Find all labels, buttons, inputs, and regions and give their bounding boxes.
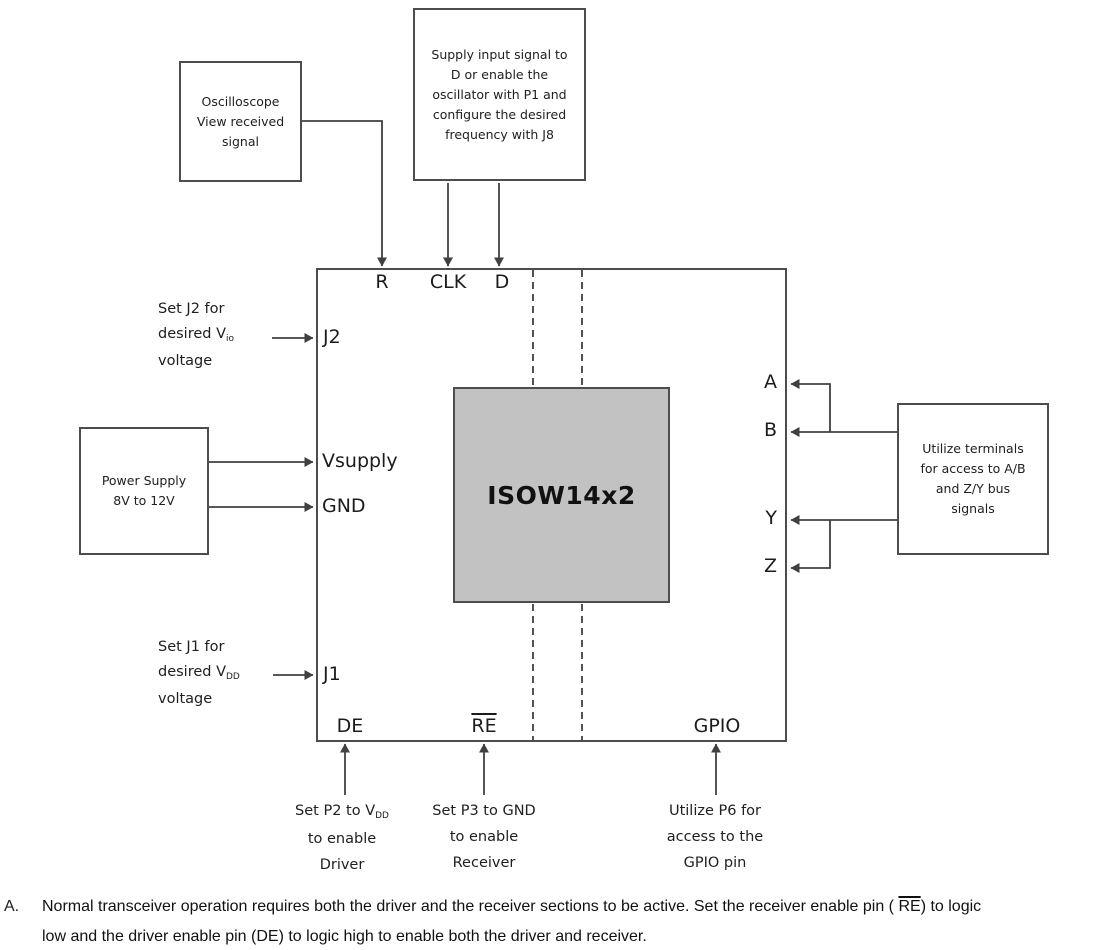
subscript: DD xyxy=(226,672,240,682)
port-label-r: R xyxy=(375,271,388,293)
subscript: DD xyxy=(375,811,389,821)
port-label-gpio: GPIO xyxy=(694,715,741,737)
supply-input-box-line: configure the desired xyxy=(433,105,566,125)
port-label-re-overline: RE xyxy=(471,715,496,737)
footnote-line-2: low and the driver enable pin (DE) to lo… xyxy=(42,922,1098,950)
bus-terminals-box-line: signals xyxy=(951,499,995,519)
annotation-line: to enable xyxy=(432,824,535,850)
port-label-gnd: GND xyxy=(322,495,366,517)
subscript: io xyxy=(226,334,234,344)
isow14x2-chip: ISOW14x2 xyxy=(453,387,670,603)
supply-input-box: Supply input signal to D or enable the o… xyxy=(413,8,586,181)
bus-terminals-box-line: for access to A/B xyxy=(920,459,1025,479)
supply-input-box-line: oscillator with P1 and xyxy=(432,85,566,105)
annotation-line: GPIO pin xyxy=(667,850,763,876)
supply-input-box-line: Supply input signal to xyxy=(431,45,567,65)
supply-input-box-line: frequency with J8 xyxy=(445,125,554,145)
footnote-text: Normal transceiver operation requires bo… xyxy=(42,892,1098,950)
annotation-set-p2: Set P2 to VDD to enable Driver xyxy=(295,798,389,878)
bus-terminals-box-line: and Z/Y bus xyxy=(936,479,1010,499)
annotation-line: Set P2 to VDD xyxy=(295,798,389,826)
port-label-d: D xyxy=(495,271,510,293)
re-overline: RE xyxy=(898,898,920,915)
footnote-marker: A. xyxy=(4,892,19,922)
power-supply-box-line: Power Supply xyxy=(102,471,186,491)
annotation-p6: Utilize P6 for access to the GPIO pin xyxy=(667,798,763,876)
annotation-line: desired VDD xyxy=(158,660,240,687)
port-label-clk: CLK xyxy=(430,271,466,293)
annotation-set-j2: Set J2 for desired Vio voltage xyxy=(158,297,234,374)
annotation-line: Receiver xyxy=(432,850,535,876)
annotation-line: Set J2 for xyxy=(158,297,234,322)
annotation-set-p3: Set P3 to GND to enable Receiver xyxy=(432,798,535,876)
bus-terminals-box: Utilize terminals for access to A/B and … xyxy=(897,403,1049,555)
annotation-line: desired Vio xyxy=(158,322,234,349)
diagram-canvas: Oscilloscope View received signal Supply… xyxy=(0,0,1100,950)
annotation-line: to enable xyxy=(295,826,389,852)
oscilloscope-box-line: signal xyxy=(222,132,259,152)
annotation-set-j1: Set J1 for desired VDD voltage xyxy=(158,635,240,712)
port-label-vsupply: Vsupply xyxy=(322,450,398,472)
port-label-j2: J2 xyxy=(323,326,341,348)
power-supply-box-line: 8V to 12V xyxy=(113,491,174,511)
wire-oscilloscope-to-r xyxy=(301,121,382,266)
oscilloscope-box-line: Oscilloscope xyxy=(202,92,280,112)
annotation-line: access to the xyxy=(667,824,763,850)
chip-label: ISOW14x2 xyxy=(487,481,635,510)
port-label-a: A xyxy=(745,371,777,393)
bus-terminals-box-line: Utilize terminals xyxy=(922,439,1023,459)
port-label-z: Z xyxy=(745,555,777,577)
power-supply-box: Power Supply 8V to 12V xyxy=(79,427,209,555)
port-label-y: Y xyxy=(745,507,777,529)
oscilloscope-box: Oscilloscope View received signal xyxy=(179,61,302,182)
port-label-b: B xyxy=(745,419,777,441)
supply-input-box-line: D or enable the xyxy=(451,65,548,85)
annotation-line: Utilize P6 for xyxy=(667,798,763,824)
oscilloscope-box-line: View received xyxy=(197,112,284,132)
annotation-line: voltage xyxy=(158,687,240,712)
footnote-line-1: Normal transceiver operation requires bo… xyxy=(42,892,1098,922)
annotation-line: voltage xyxy=(158,349,234,374)
annotation-line: Set P3 to GND xyxy=(432,798,535,824)
annotation-line: Set J1 for xyxy=(158,635,240,660)
wire-bus-to-z xyxy=(791,520,830,568)
port-label-de: DE xyxy=(337,715,364,737)
port-label-j1: J1 xyxy=(323,663,341,685)
annotation-line: Driver xyxy=(295,852,389,878)
wire-bus-to-a xyxy=(791,384,830,432)
